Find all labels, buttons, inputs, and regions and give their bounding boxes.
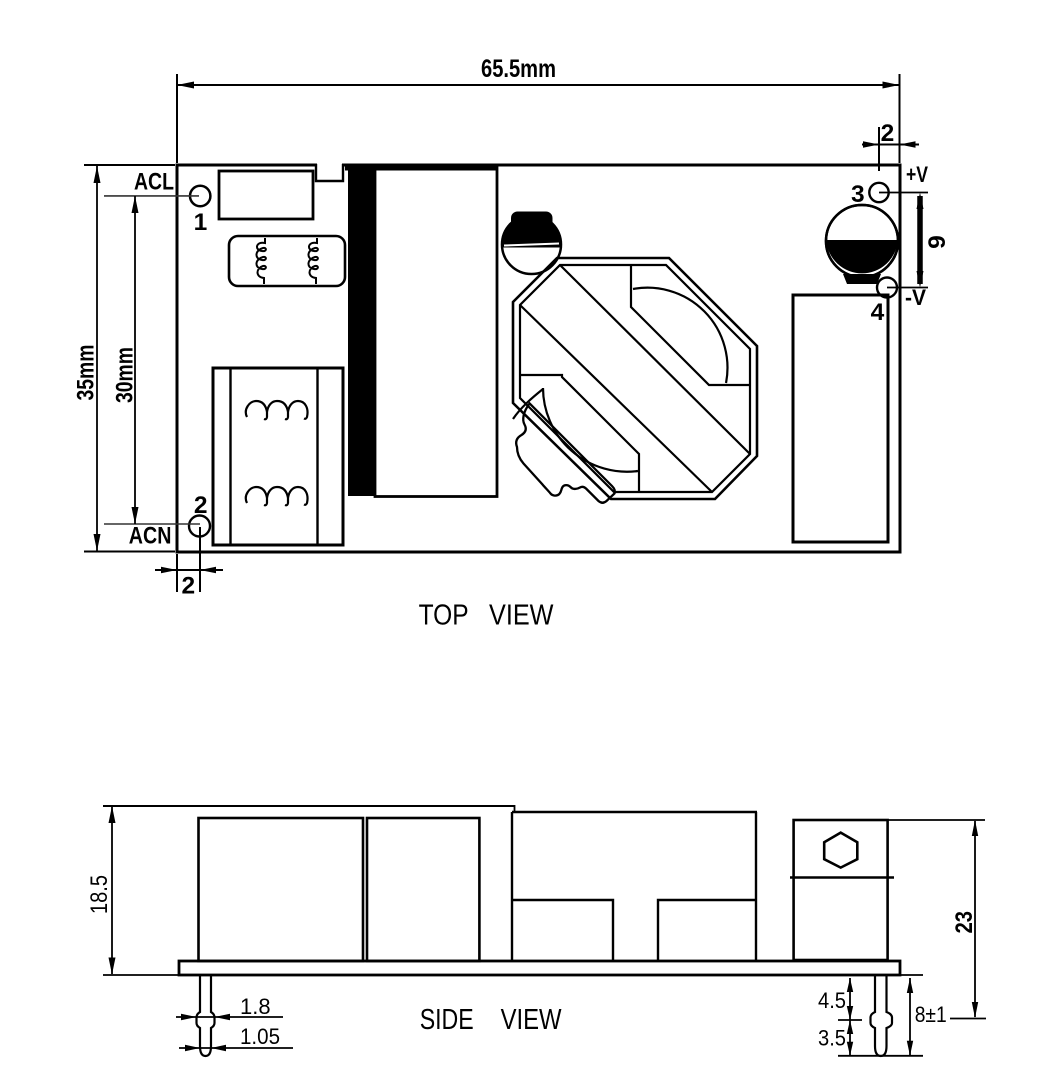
- svg-text:4: 4: [871, 299, 885, 326]
- svg-text:TOP: TOP: [419, 600, 469, 632]
- svg-text:2: 2: [181, 573, 195, 600]
- svg-text:1.05: 1.05: [240, 1024, 280, 1049]
- svg-text:23: 23: [951, 911, 978, 934]
- svg-text:+V: +V: [906, 162, 928, 187]
- svg-text:3.5: 3.5: [818, 1026, 846, 1051]
- svg-text:VIEW: VIEW: [501, 1004, 563, 1036]
- svg-text:SIDE: SIDE: [420, 1004, 474, 1036]
- svg-text:2: 2: [194, 492, 208, 519]
- svg-text:ACL: ACL: [134, 169, 174, 196]
- svg-text:65.5mm: 65.5mm: [481, 55, 556, 83]
- svg-text:1.8: 1.8: [240, 994, 271, 1019]
- svg-text:9: 9: [924, 235, 951, 249]
- svg-text:VIEW: VIEW: [489, 600, 554, 632]
- svg-text:-V: -V: [905, 285, 926, 310]
- svg-text:4.5: 4.5: [818, 988, 846, 1013]
- svg-text:ACN: ACN: [129, 523, 172, 550]
- svg-text:8±1: 8±1: [915, 1002, 947, 1027]
- svg-text:2: 2: [881, 120, 895, 147]
- svg-text:35mm: 35mm: [73, 345, 100, 401]
- svg-text:3: 3: [851, 181, 865, 208]
- svg-text:1: 1: [194, 209, 208, 236]
- svg-text:30mm: 30mm: [112, 347, 139, 403]
- svg-text:18.5: 18.5: [86, 875, 113, 914]
